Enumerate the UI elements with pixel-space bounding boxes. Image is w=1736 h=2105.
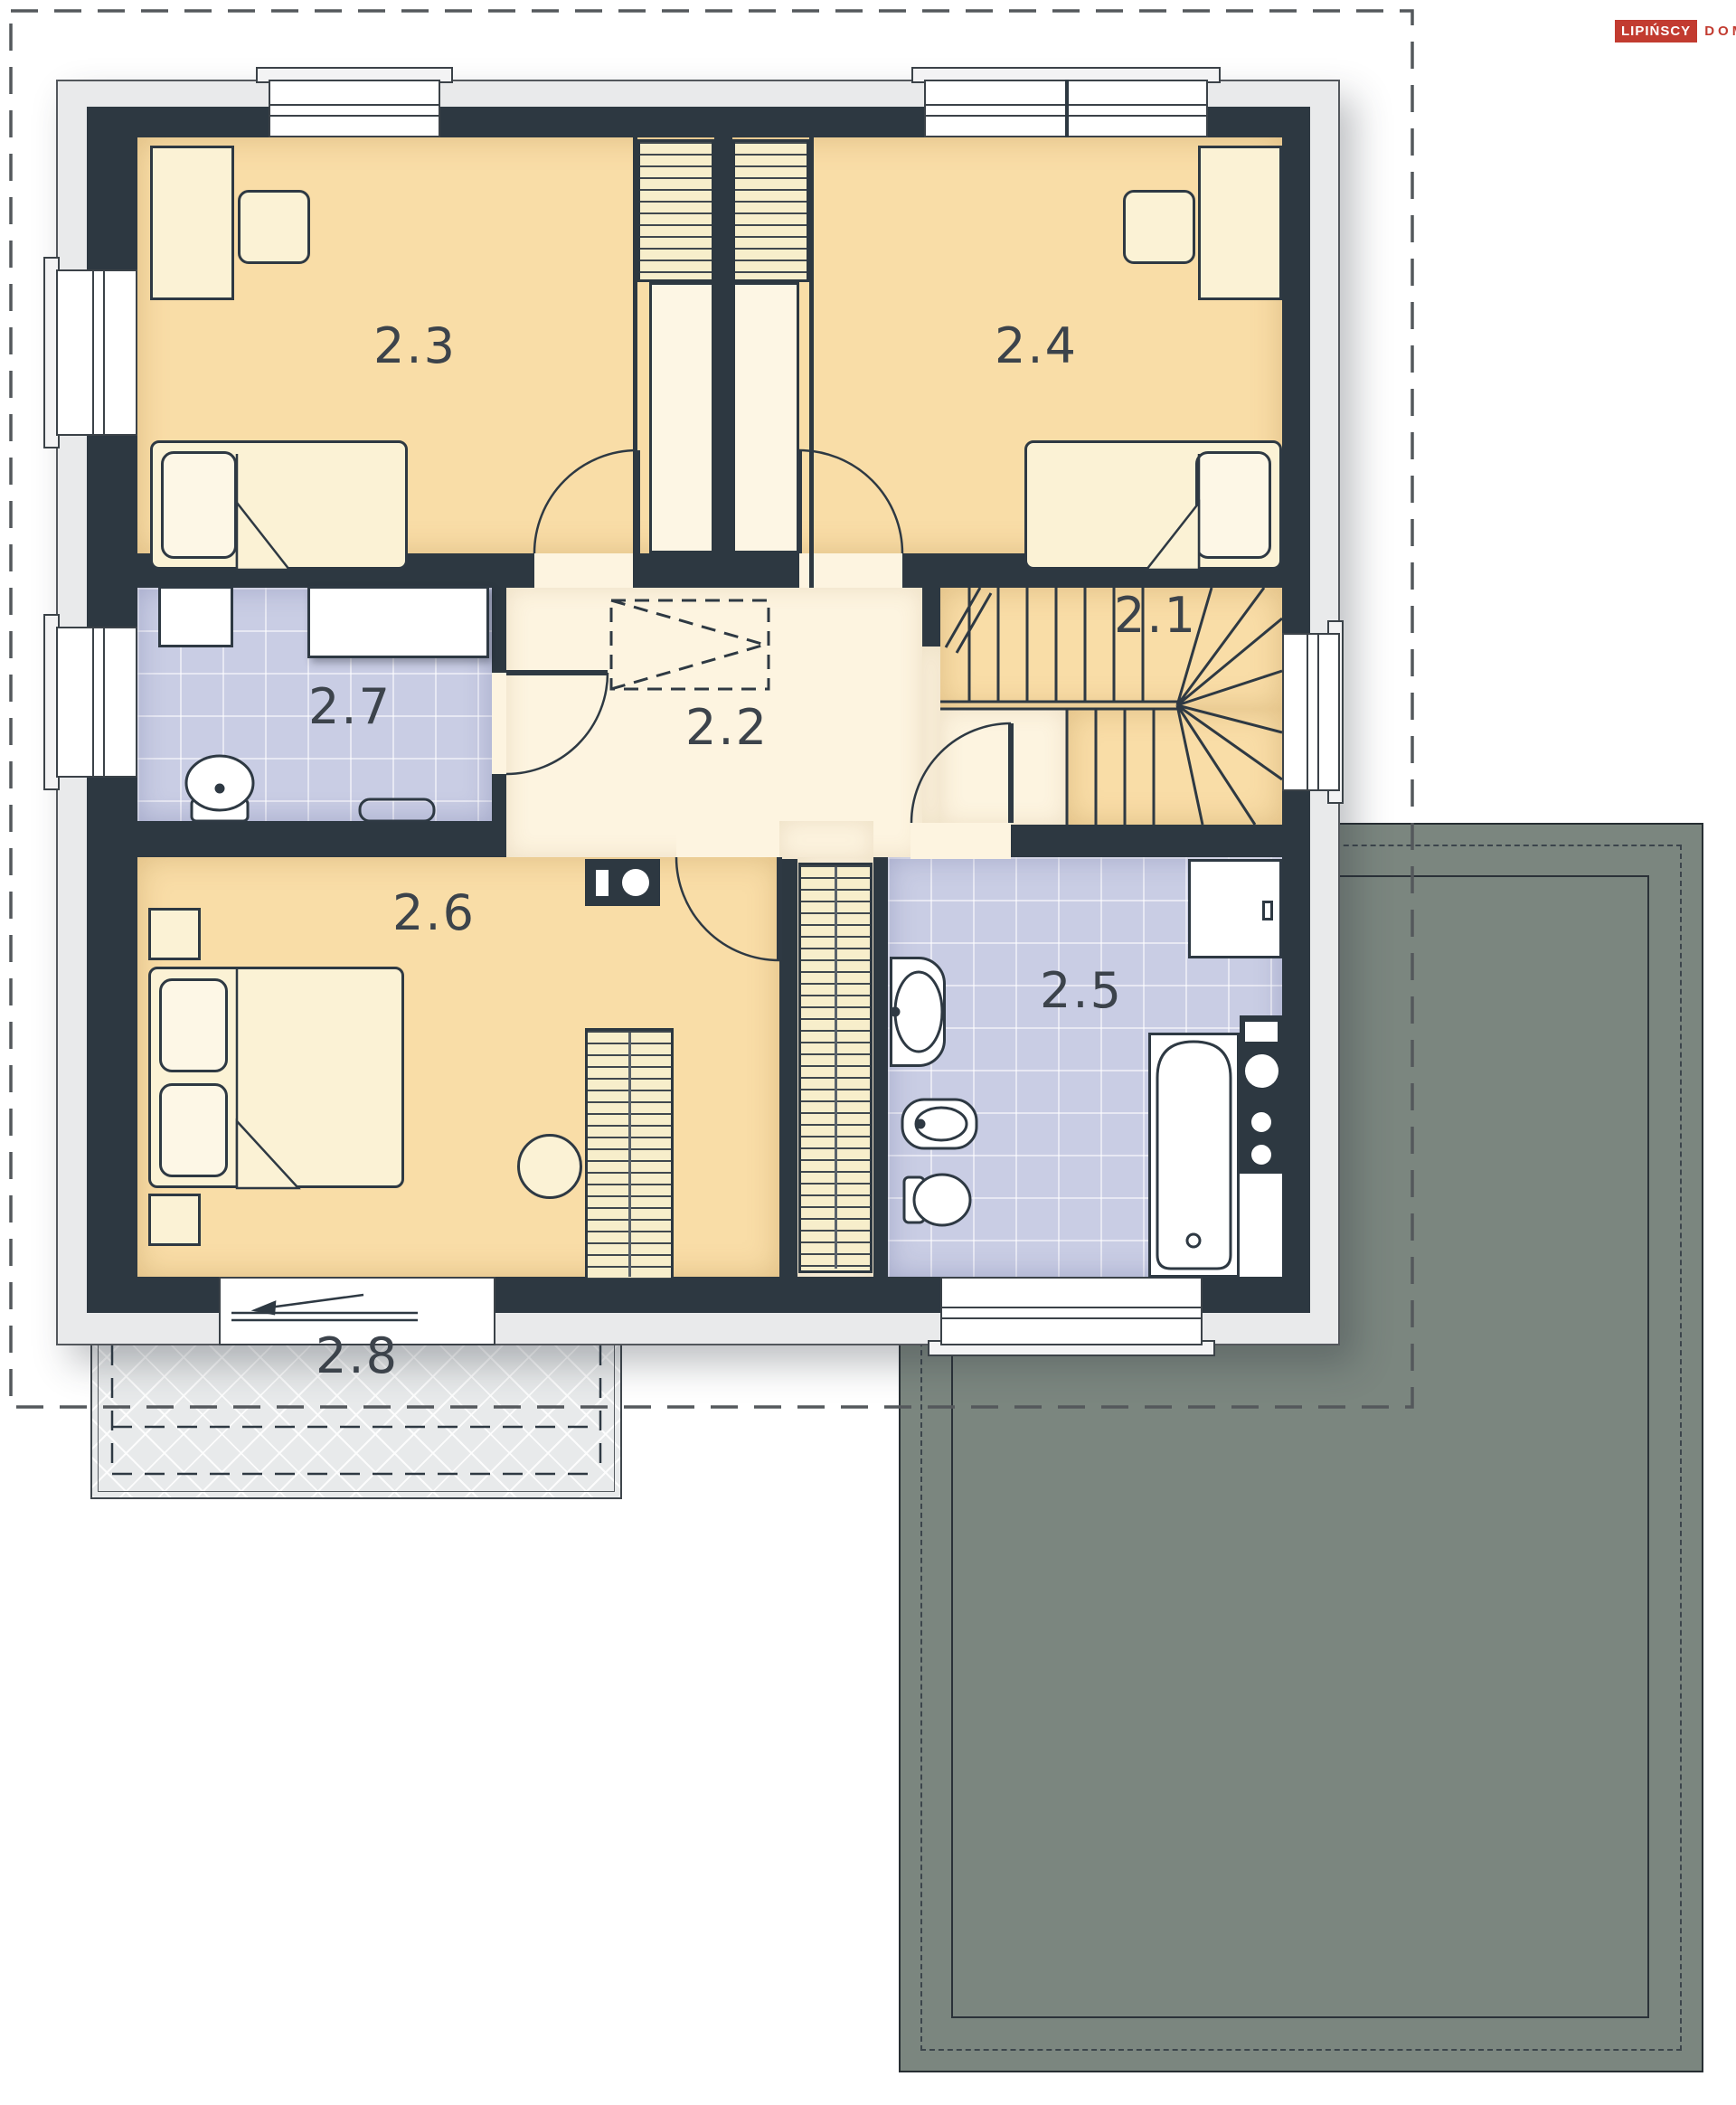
door-2-4-icon bbox=[799, 450, 902, 553]
toilet-2-7-icon bbox=[186, 756, 253, 821]
label-room-2-2: 2.2 bbox=[637, 699, 817, 757]
label-room-2-3: 2.3 bbox=[325, 317, 505, 375]
radiator-2-7-icon bbox=[360, 799, 434, 821]
brand-logo-secondary: DOMY bbox=[1704, 24, 1736, 39]
brand-logo: LIPIŃSCY DOMY bbox=[1615, 20, 1736, 42]
washbasin-2-5-bowl bbox=[892, 972, 942, 1052]
label-room-2-7: 2.7 bbox=[259, 678, 440, 736]
toilet-2-5-icon bbox=[904, 1175, 970, 1225]
plan-linework bbox=[0, 0, 1736, 2105]
label-room-2-6: 2.6 bbox=[344, 884, 524, 942]
door-2-3-icon bbox=[534, 450, 637, 553]
door-2-7-icon bbox=[506, 673, 608, 774]
attic-hatch-icon bbox=[611, 600, 769, 689]
bathtub-2-5-inner bbox=[1157, 1042, 1231, 1269]
label-room-2-1: 2.1 bbox=[1065, 587, 1246, 645]
brand-logo-primary: LIPIŃSCY bbox=[1615, 20, 1697, 42]
label-room-2-4: 2.4 bbox=[946, 317, 1127, 375]
door-2-5-icon bbox=[911, 723, 1011, 823]
label-room-2-8: 2.8 bbox=[267, 1327, 448, 1385]
bidet-2-5-icon bbox=[902, 1100, 976, 1148]
door-2-6-icon bbox=[676, 857, 779, 960]
floor-plan-canvas: 2.1 2.2 2.3 2.4 2.5 2.6 2.7 2.8 LIPIŃSCY… bbox=[0, 0, 1736, 2105]
label-room-2-5: 2.5 bbox=[991, 962, 1172, 1020]
balcony-door-slider-icon bbox=[231, 1295, 418, 1320]
